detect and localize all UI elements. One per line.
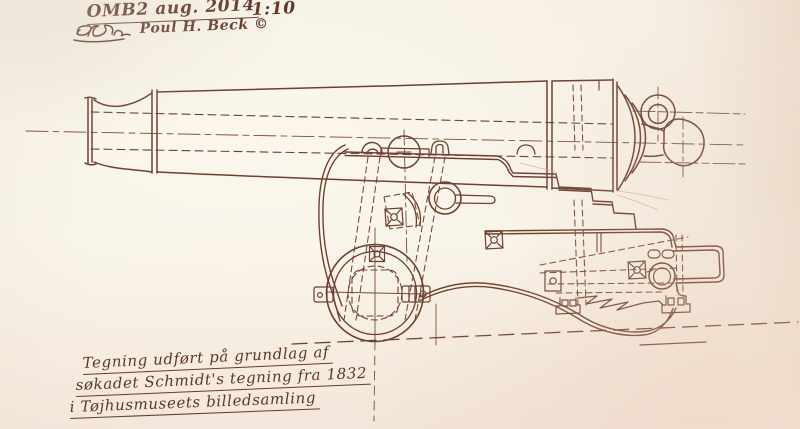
bolt-plate bbox=[370, 247, 385, 262]
breech-section bbox=[552, 79, 617, 192]
bolt-plate bbox=[545, 271, 561, 291]
rail-bolt-dome bbox=[517, 145, 535, 154]
barrel-body bbox=[157, 81, 547, 187]
barrel-group bbox=[85, 79, 617, 192]
rear-pill-bolts bbox=[648, 250, 674, 258]
cascabel-group bbox=[618, 86, 704, 190]
scanned-drawing-page: OMB2 aug. 2014 1:10 Poul H. Beck © Tegni… bbox=[0, 0, 800, 429]
toggle-pin bbox=[456, 195, 495, 204]
neck-bottom bbox=[644, 155, 663, 156]
ring-bolt-front bbox=[429, 182, 495, 214]
quoin-steps bbox=[497, 156, 636, 229]
bolt-plates bbox=[370, 208, 646, 291]
rear-foot-right bbox=[662, 296, 690, 313]
rear-foot-left bbox=[556, 298, 580, 314]
ring-bolt-rear bbox=[647, 263, 675, 289]
muzzle-swell bbox=[94, 90, 157, 173]
cap-square-eye-bolt bbox=[362, 142, 382, 153]
cap-square-keeper bbox=[431, 141, 449, 154]
hidden-dashed-lines bbox=[344, 85, 688, 320]
carriage-group bbox=[314, 136, 724, 335]
signature-monogram bbox=[72, 20, 140, 46]
moulding-arc bbox=[618, 86, 635, 190]
cascabel-button bbox=[664, 119, 704, 166]
reinforce-ring bbox=[547, 81, 552, 189]
datum-tick-line bbox=[640, 342, 706, 345]
rear-handle-bracket bbox=[673, 246, 724, 296]
moulding-arc bbox=[625, 95, 641, 181]
axletree-stub-left bbox=[314, 287, 333, 302]
muzzle-face bbox=[85, 97, 96, 165]
bracket-bottom-edge-zigzag bbox=[578, 296, 663, 310]
bracket-rear-top-edge bbox=[485, 229, 676, 252]
